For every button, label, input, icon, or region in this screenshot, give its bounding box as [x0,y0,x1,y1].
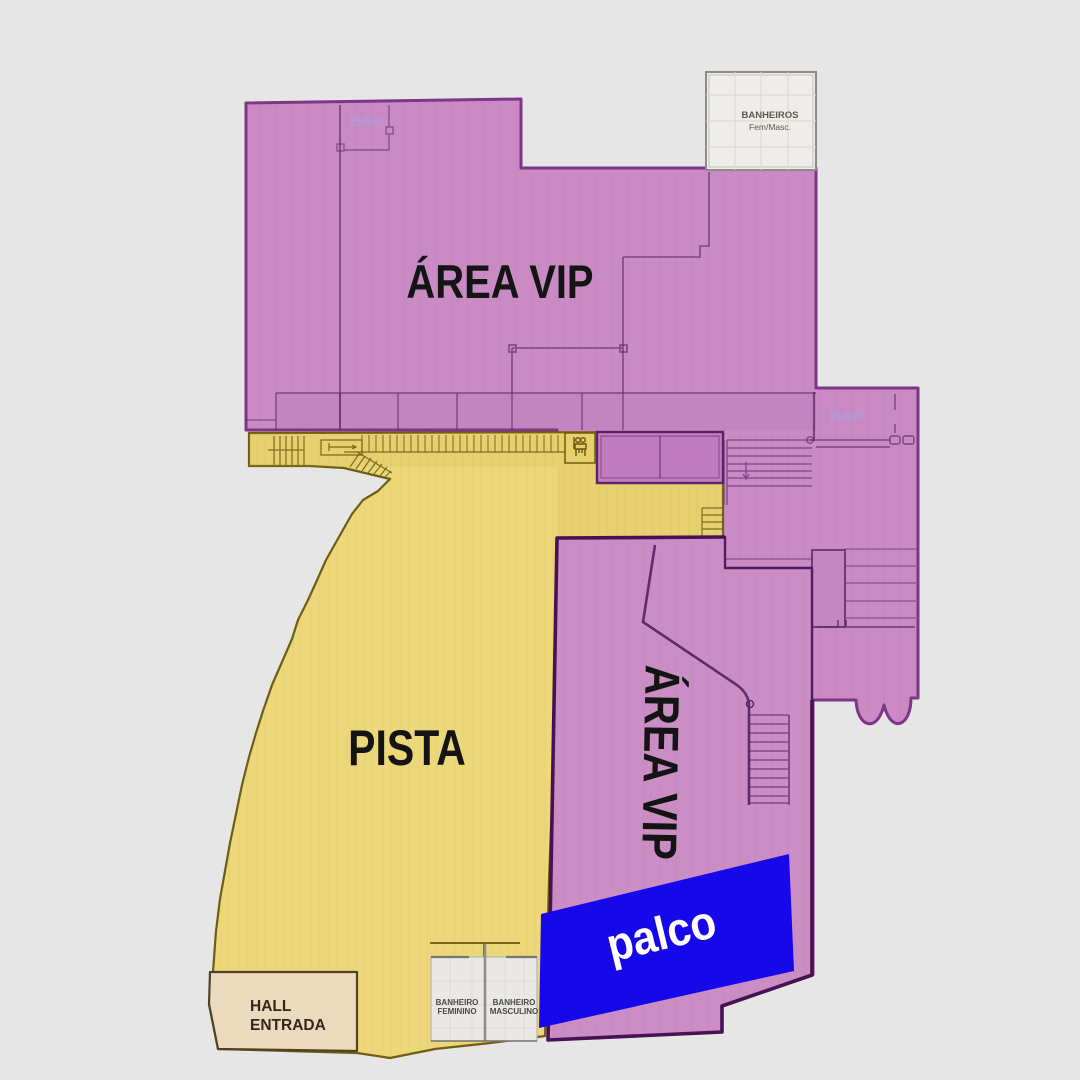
svg-text:FEMININO: FEMININO [437,1007,476,1016]
svg-text:MASCULINO: MASCULINO [490,1007,538,1016]
svg-text:BAR: BAR [830,408,863,425]
svg-text:BAR: BAR [350,113,383,130]
svg-text:ÁREA VIP: ÁREA VIP [406,255,593,309]
svg-text:BANHEIRO: BANHEIRO [493,998,536,1007]
svg-text:ENTRADA: ENTRADA [250,1017,326,1034]
svg-text:BANHEIRO: BANHEIRO [436,998,479,1007]
svg-text:ÁREA VIP: ÁREA VIP [632,664,690,860]
svg-text:HALL: HALL [250,998,291,1015]
svg-text:PISTA: PISTA [348,720,466,776]
svg-text:BANHEIROS: BANHEIROS [741,110,798,121]
svg-text:Fem/Masc.: Fem/Masc. [749,122,791,132]
